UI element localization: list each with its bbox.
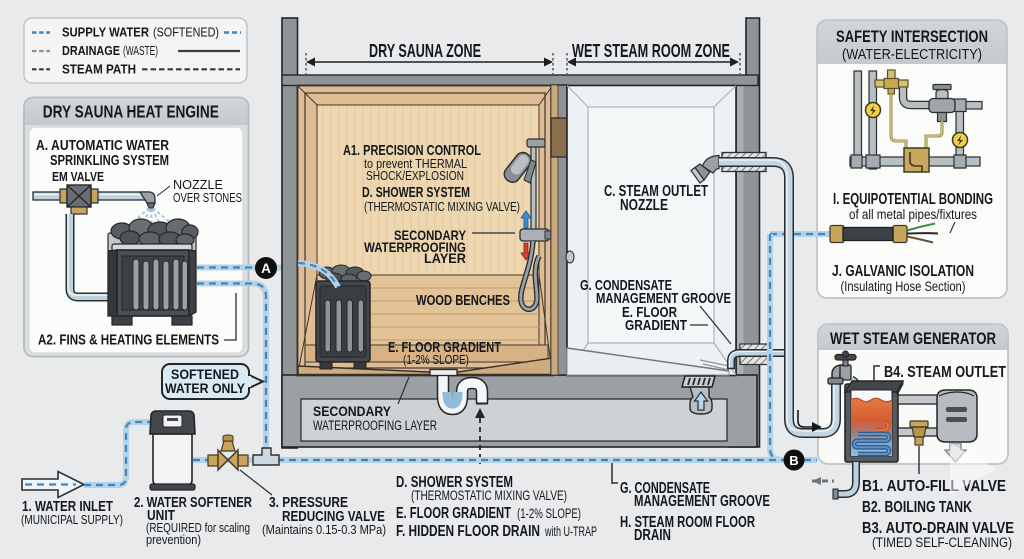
svg-text:DRY SAUNA ZONE: DRY SAUNA ZONE — [369, 41, 481, 61]
svg-text:(1-2% SLOPE): (1-2% SLOPE) — [517, 506, 581, 521]
svg-text:(MUNICIPAL SUPPLY): (MUNICIPAL SUPPLY) — [21, 512, 123, 527]
svg-text:DRY SAUNA HEAT ENGINE: DRY SAUNA HEAT ENGINE — [43, 102, 219, 122]
svg-text:(WASTE): (WASTE) — [123, 44, 158, 58]
svg-text:F. HIDDEN FLOOR DRAIN: F. HIDDEN FLOOR DRAIN — [396, 523, 540, 540]
svg-text:(THERMOSTATIC MIXING VALVE): (THERMOSTATIC MIXING VALVE) — [411, 488, 567, 503]
svg-text:WET STEAM ROOM ZONE: WET STEAM ROOM ZONE — [572, 41, 730, 61]
svg-text:WOOD BENCHES: WOOD BENCHES — [416, 292, 510, 309]
svg-text:B4. STEAM OUTLET: B4. STEAM OUTLET — [884, 364, 1006, 381]
svg-text:DRAIN: DRAIN — [634, 527, 671, 544]
svg-text:SHOCK/EXPLOSION: SHOCK/EXPLOSION — [366, 168, 464, 183]
svg-text:DRAINAGE: DRAINAGE — [62, 44, 120, 58]
svg-text:(THERMOSTATIC MIXING VALVE): (THERMOSTATIC MIXING VALVE) — [364, 199, 520, 214]
svg-text:SUPPLY WATER: SUPPLY WATER — [62, 26, 149, 40]
svg-text:MANAGEMENT GROOVE: MANAGEMENT GROOVE — [634, 493, 770, 510]
svg-text:I. EQUIPOTENTIAL BONDING: I. EQUIPOTENTIAL BONDING — [833, 191, 993, 208]
svg-text:A: A — [261, 261, 271, 276]
svg-text:(Insulating Hose Section): (Insulating Hose Section) — [841, 279, 966, 294]
svg-text:SPRINKLING SYSTEM: SPRINKLING SYSTEM — [50, 153, 169, 169]
svg-text:A2. FINS & HEATING ELEMENTS: A2. FINS & HEATING ELEMENTS — [38, 333, 219, 349]
svg-text:E. FLOOR GRADIENT: E. FLOOR GRADIENT — [396, 505, 511, 522]
svg-text:(WATER-ELECTRICITY): (WATER-ELECTRICITY) — [842, 46, 982, 63]
svg-text:B2. BOILING TANK: B2. BOILING TANK — [862, 499, 972, 516]
svg-text:WATERPROOFING LAYER: WATERPROOFING LAYER — [313, 418, 437, 433]
svg-text:(1-2% SLOPE): (1-2% SLOPE) — [403, 352, 469, 367]
svg-text:OVER STONES: OVER STONES — [173, 191, 242, 205]
svg-text:SECONDARY: SECONDARY — [313, 404, 391, 419]
svg-text:NOZZLE: NOZZLE — [620, 197, 668, 214]
svg-text:SAFETY INTERSECTION: SAFETY INTERSECTION — [836, 27, 988, 46]
svg-text:(Maintains 0.15-0.3 MPa): (Maintains 0.15-0.3 MPa) — [262, 522, 386, 537]
svg-text:WET STEAM GENERATOR: WET STEAM GENERATOR — [830, 329, 996, 348]
svg-text:B1. AUTO-FILL VALVE: B1. AUTO-FILL VALVE — [862, 478, 1006, 495]
svg-text:NOZZLE: NOZZLE — [173, 178, 223, 192]
svg-text:with U-TRAP: with U-TRAP — [544, 524, 597, 539]
svg-text:LAYER: LAYER — [424, 250, 466, 266]
svg-text:prevention): prevention) — [146, 532, 201, 547]
svg-text:(SOFTENED): (SOFTENED) — [153, 26, 219, 40]
svg-text:A. AUTOMATIC WATER: A. AUTOMATIC WATER — [36, 138, 169, 154]
svg-text:of all metal pipes/fixtures: of all metal pipes/fixtures — [849, 207, 977, 222]
svg-text:GRADIENT: GRADIENT — [625, 317, 687, 334]
svg-text:B: B — [789, 453, 798, 468]
svg-text:J. GALVANIC ISOLATION: J. GALVANIC ISOLATION — [832, 263, 974, 280]
svg-text:WATER ONLY: WATER ONLY — [165, 381, 245, 396]
svg-text:(TIMED SELF-CLEANING): (TIMED SELF-CLEANING) — [872, 535, 1012, 550]
svg-text:SOFTENED: SOFTENED — [171, 367, 239, 382]
svg-text:STEAM PATH: STEAM PATH — [62, 62, 136, 76]
svg-text:EM VALVE: EM VALVE — [52, 170, 104, 184]
